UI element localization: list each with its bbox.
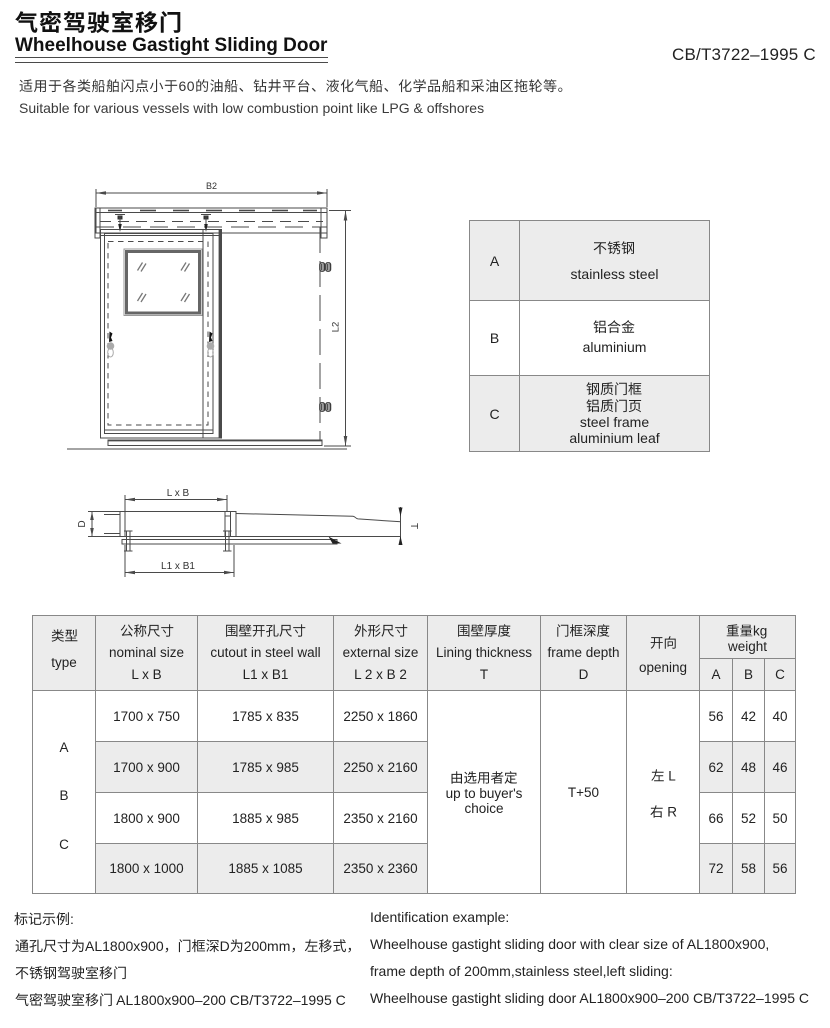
- svg-text::: :: [70, 912, 74, 927]
- svg-text:D: D: [220, 939, 230, 954]
- svg-text:L: L: [664, 769, 676, 784]
- svg-text:L1 x B1: L1 x B1: [161, 561, 195, 572]
- svg-text:R: R: [663, 805, 677, 820]
- svg-text:T: T: [408, 523, 419, 529]
- svg-text:L2: L2: [331, 322, 342, 333]
- svg-text:L x B: L x B: [167, 488, 190, 499]
- svg-text:D: D: [77, 520, 88, 527]
- svg-text:AL1800x900–200 CB/T3722–1995 C: AL1800x900–200 CB/T3722–1995 C: [113, 993, 346, 1008]
- svg-text:kg: kg: [753, 624, 767, 639]
- svg-text:60: 60: [179, 79, 196, 94]
- svg-text:200mm: 200mm: [244, 939, 291, 954]
- svg-text:AL1800x900: AL1800x900: [85, 939, 164, 954]
- svg-text:B2: B2: [206, 181, 217, 191]
